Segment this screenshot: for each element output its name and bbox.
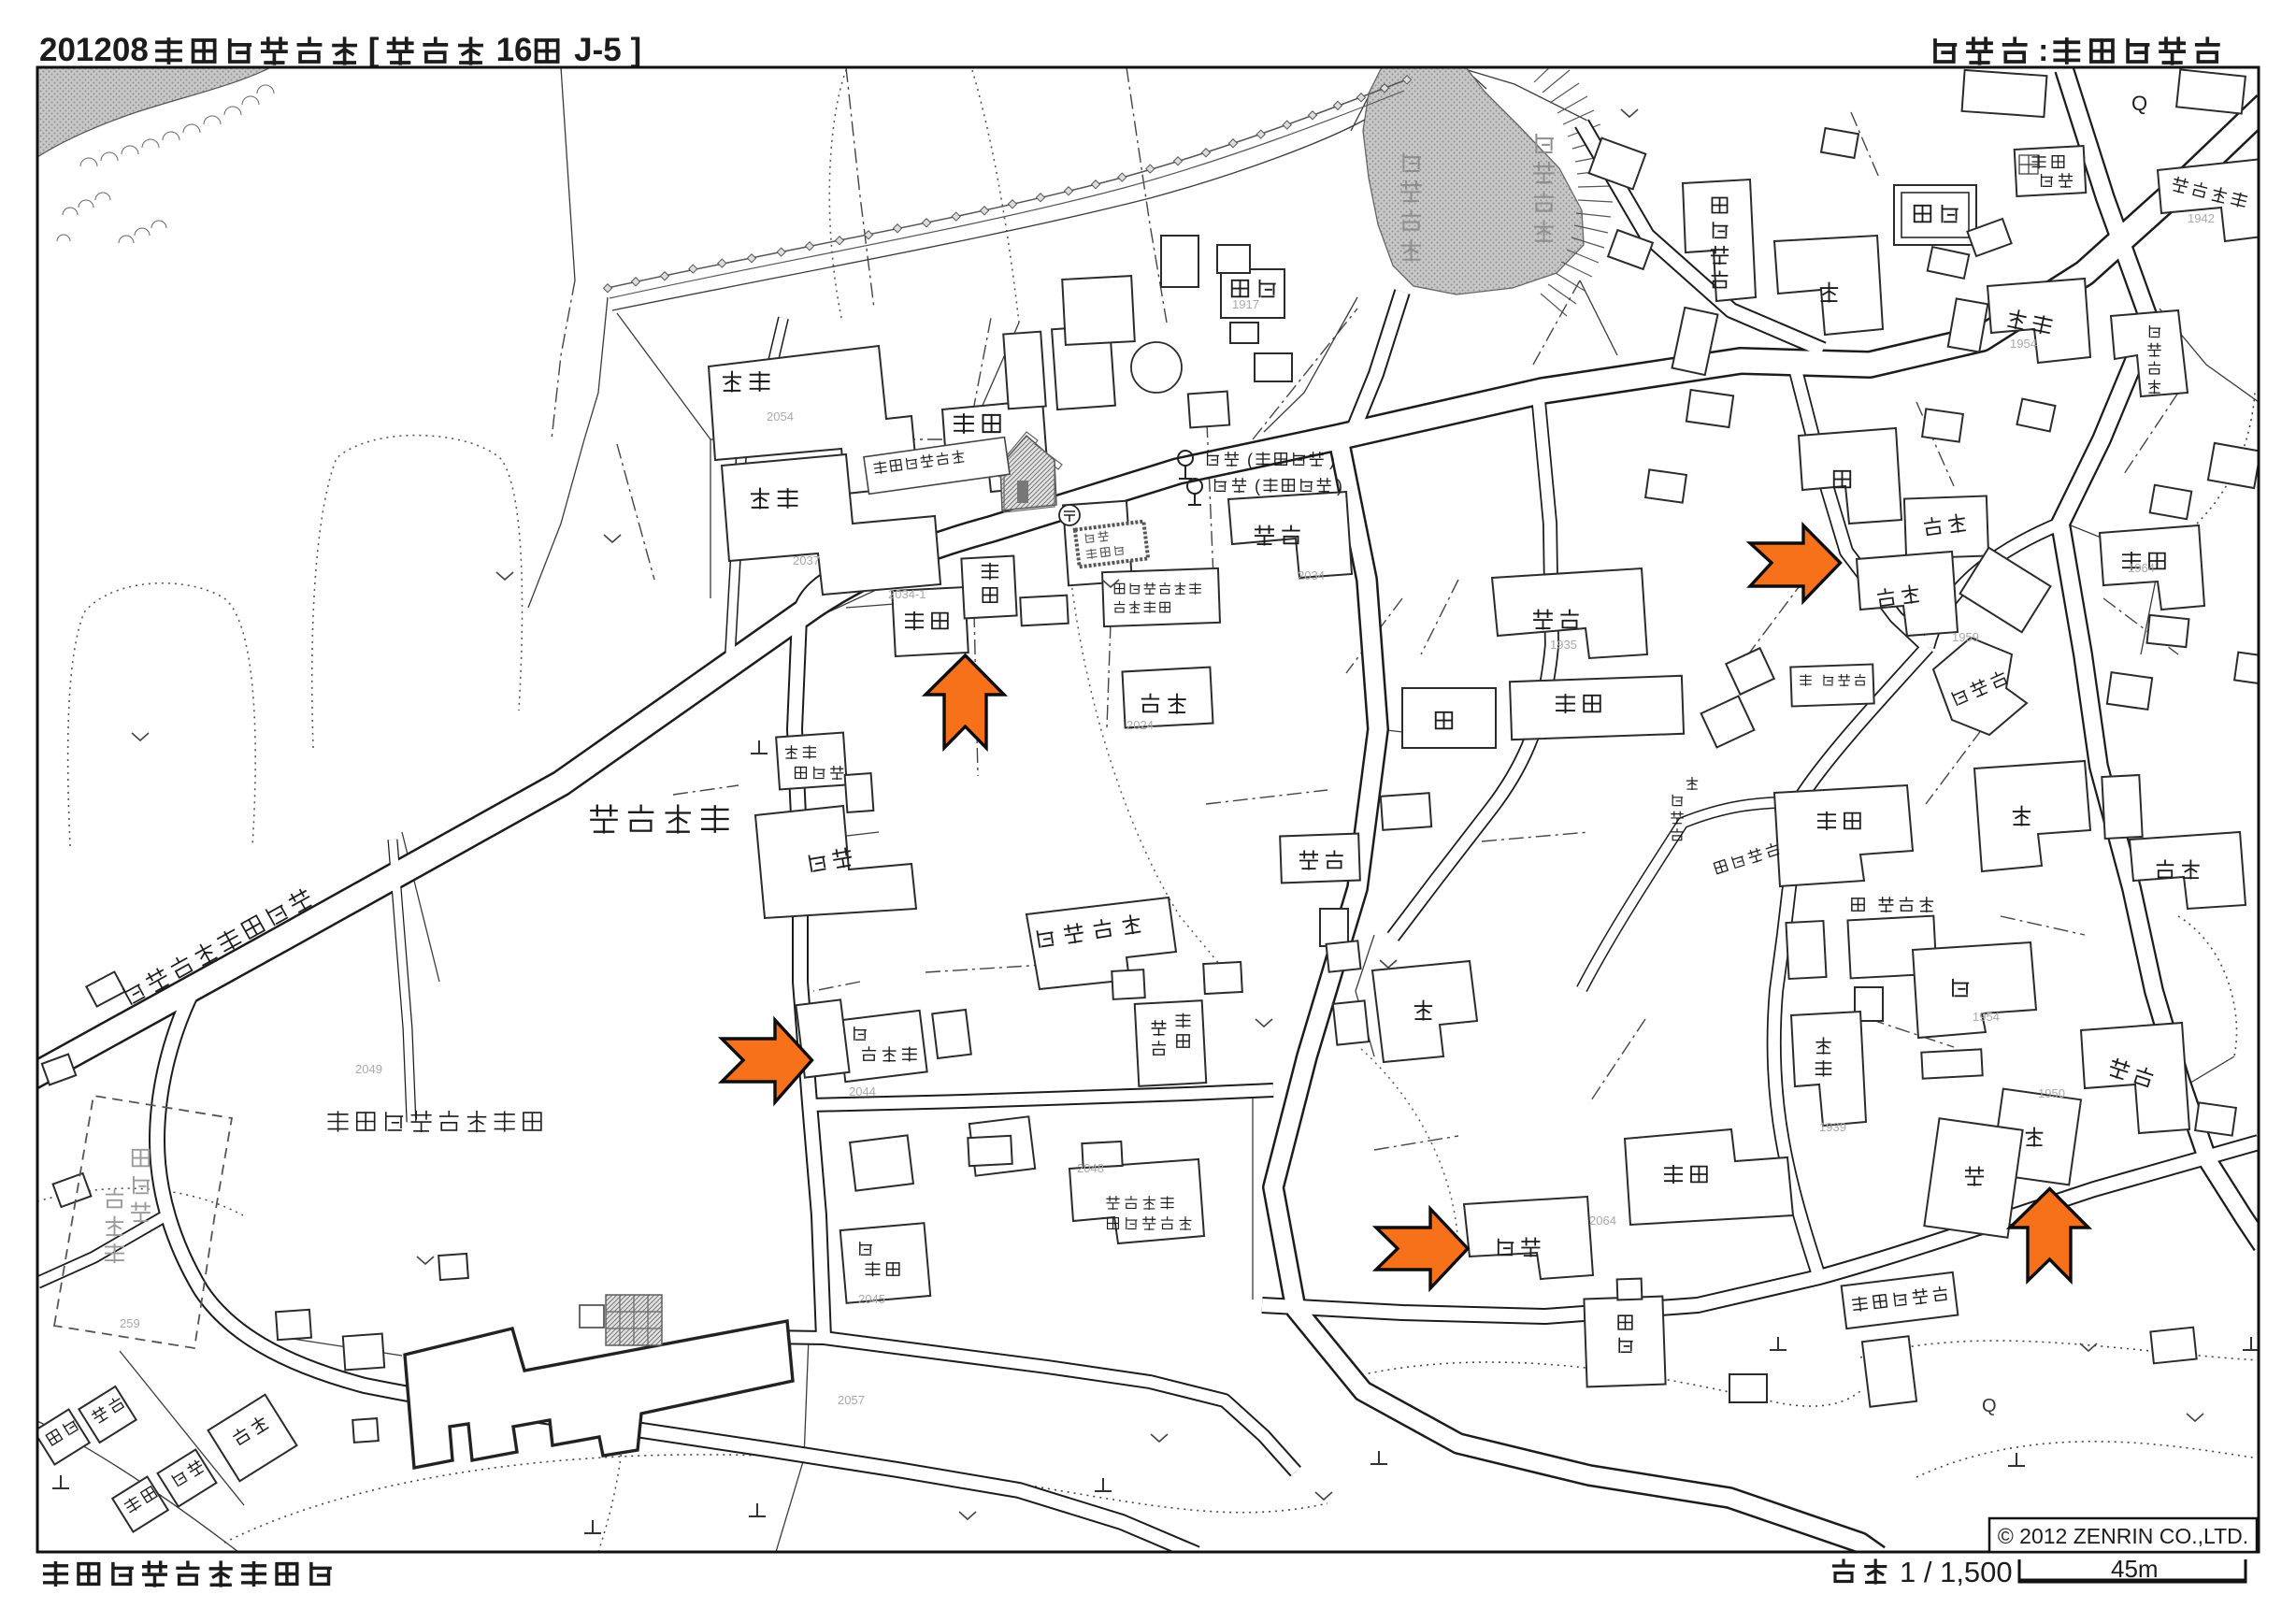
svg-text:2064: 2064	[1589, 1214, 1616, 1228]
svg-text:2048: 2048	[1077, 1161, 1104, 1175]
svg-text:1917: 1917	[1232, 297, 1259, 311]
svg-text:[: [	[368, 32, 380, 68]
svg-text:1935: 1935	[1550, 638, 1577, 652]
svg-text:Q: Q	[2131, 92, 2147, 115]
svg-text:1939: 1939	[1819, 1120, 1846, 1134]
svg-text:): )	[1337, 477, 1342, 496]
svg-text:1959: 1959	[1952, 630, 1979, 644]
svg-text:2037: 2037	[793, 553, 820, 567]
svg-text:2024: 2024	[1126, 718, 1154, 732]
svg-text:2034: 2034	[1298, 568, 1325, 582]
svg-text:259: 259	[120, 1316, 140, 1330]
svg-text:2034-1: 2034-1	[888, 587, 926, 601]
svg-text:16: 16	[496, 32, 533, 68]
svg-text:2049: 2049	[355, 1062, 382, 1076]
svg-text:(: (	[1255, 477, 1260, 496]
svg-text:201208: 201208	[39, 32, 149, 68]
svg-text:© 2012 ZENRIN CO.,LTD.: © 2012 ZENRIN CO.,LTD.	[1998, 1524, 2248, 1548]
svg-text:45m: 45m	[2111, 1555, 2159, 1583]
svg-text:1954: 1954	[1973, 1010, 2000, 1024]
svg-text:2045: 2045	[858, 1292, 885, 1306]
svg-text:1954: 1954	[2010, 337, 2037, 351]
svg-text:Q: Q	[1982, 1396, 1997, 1416]
svg-text:1 / 1,500: 1 / 1,500	[1900, 1556, 2013, 1588]
svg-text:2054: 2054	[767, 409, 794, 424]
svg-text:1964: 1964	[2128, 561, 2155, 575]
svg-text:(: (	[1247, 451, 1253, 469]
svg-text:): )	[1329, 451, 1335, 469]
svg-text:1942: 1942	[2188, 211, 2215, 225]
svg-text:1950: 1950	[2038, 1086, 2065, 1100]
svg-text:2057: 2057	[838, 1393, 865, 1407]
svg-text:2044: 2044	[849, 1084, 876, 1099]
svg-text::: :	[2038, 33, 2048, 67]
svg-text:J-5 ]: J-5 ]	[574, 32, 641, 68]
